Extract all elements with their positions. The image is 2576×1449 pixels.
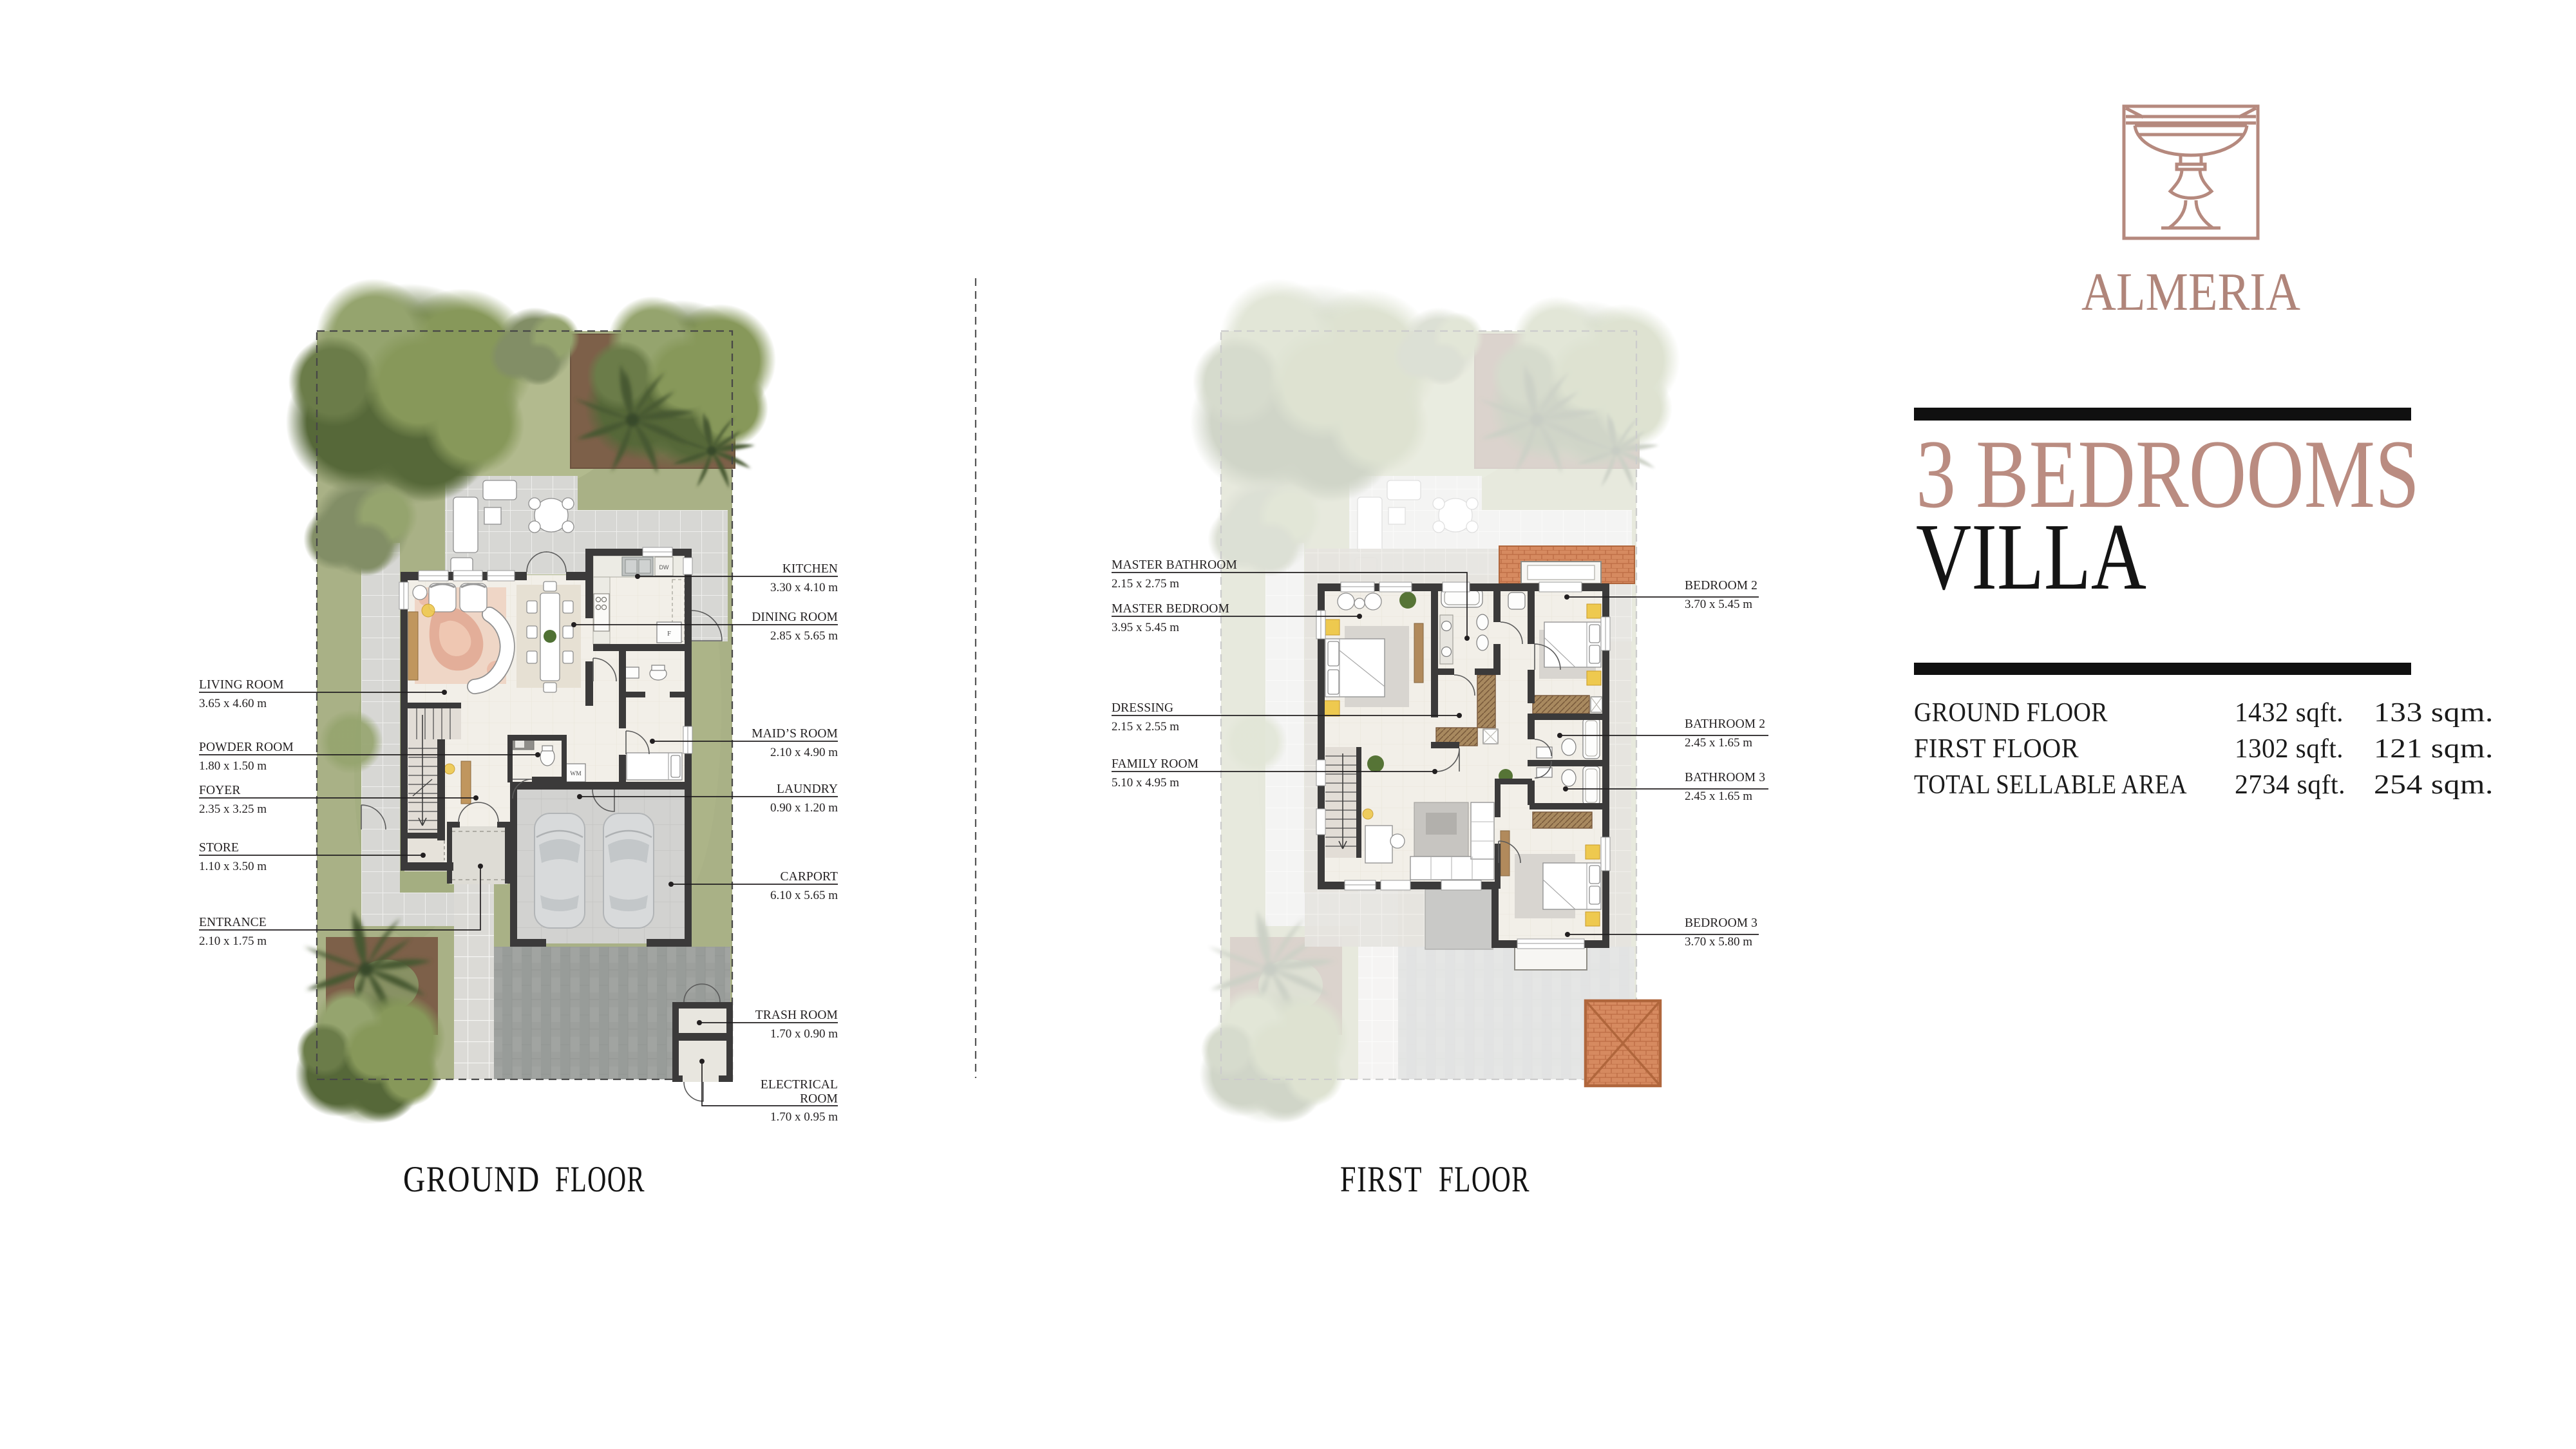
- svg-text:3.30 x 4.10 m: 3.30 x 4.10 m: [770, 581, 838, 594]
- svg-text:GROUND: GROUND: [403, 1159, 540, 1200]
- svg-text:FAMILY ROOM: FAMILY ROOM: [1112, 757, 1198, 771]
- svg-text:3.95 x 5.45 m: 3.95 x 5.45 m: [1112, 621, 1179, 634]
- svg-text:0.90 x 1.20 m: 0.90 x 1.20 m: [770, 801, 838, 815]
- svg-text:LIVING ROOM: LIVING ROOM: [199, 678, 284, 692]
- svg-text:STORE: STORE: [199, 841, 239, 855]
- svg-text:3.65 x 4.60 m: 3.65 x 4.60 m: [199, 697, 267, 710]
- svg-text:BATHROOM 2: BATHROOM 2: [1685, 717, 1765, 731]
- svg-text:5.10 x 4.95 m: 5.10 x 4.95 m: [1112, 776, 1179, 790]
- svg-text:LAUNDRY: LAUNDRY: [777, 782, 838, 796]
- svg-text:FIRST FLOOR: FIRST FLOOR: [1914, 734, 2079, 764]
- svg-text:1.80 x 1.50 m: 1.80 x 1.50 m: [199, 759, 267, 773]
- svg-text:BATHROOM 3: BATHROOM 3: [1685, 771, 1765, 784]
- svg-text:2.15 x 2.55 m: 2.15 x 2.55 m: [1112, 720, 1179, 734]
- svg-text:ROOM: ROOM: [800, 1092, 838, 1106]
- svg-text:MAID’S ROOM: MAID’S ROOM: [752, 727, 838, 741]
- svg-text:254 sqm.: 254 sqm.: [2374, 770, 2494, 800]
- svg-text:FLOOR: FLOOR: [1439, 1159, 1530, 1200]
- svg-text:WM: WM: [570, 771, 582, 777]
- svg-text:KITCHEN: KITCHEN: [782, 562, 838, 576]
- svg-text:CARPORT: CARPORT: [781, 870, 838, 884]
- svg-text:1432 sqft.: 1432 sqft.: [2235, 697, 2344, 728]
- svg-text:121 sqm.: 121 sqm.: [2374, 734, 2494, 764]
- svg-text:F: F: [667, 630, 671, 638]
- svg-text:TOTAL SELLABLE AREA: TOTAL SELLABLE AREA: [1914, 770, 2187, 800]
- svg-text:2.35 x 3.25 m: 2.35 x 3.25 m: [199, 802, 267, 816]
- svg-text:ENTRANCE: ENTRANCE: [199, 916, 267, 929]
- svg-text:6.10 x 5.65 m: 6.10 x 5.65 m: [770, 889, 838, 902]
- svg-text:BEDROOM 2: BEDROOM 2: [1685, 579, 1757, 592]
- svg-text:3.70 x 5.45 m: 3.70 x 5.45 m: [1685, 598, 1752, 611]
- svg-text:VILLA: VILLA: [1916, 504, 2146, 610]
- svg-text:133 sqm.: 133 sqm.: [2374, 697, 2494, 728]
- svg-text:MASTER BATHROOM: MASTER BATHROOM: [1112, 558, 1237, 572]
- svg-text:1.10 x 3.50 m: 1.10 x 3.50 m: [199, 860, 267, 873]
- svg-text:FLOOR: FLOOR: [555, 1159, 645, 1200]
- svg-text:ALMERIA: ALMERIA: [2081, 262, 2300, 322]
- svg-text:2.45 x 1.65 m: 2.45 x 1.65 m: [1685, 790, 1752, 803]
- svg-text:1302 sqft.: 1302 sqft.: [2235, 734, 2344, 764]
- svg-text:2.10 x 1.75 m: 2.10 x 1.75 m: [199, 934, 267, 948]
- svg-text:ELECTRICAL: ELECTRICAL: [761, 1078, 838, 1092]
- svg-text:GROUND FLOOR: GROUND FLOOR: [1914, 697, 2108, 728]
- svg-text:MASTER BEDROOM: MASTER BEDROOM: [1112, 602, 1229, 616]
- svg-text:1.70 x 0.90 m: 1.70 x 0.90 m: [770, 1027, 838, 1041]
- svg-text:DINING ROOM: DINING ROOM: [752, 611, 838, 624]
- svg-text:DRESSING: DRESSING: [1112, 701, 1173, 715]
- svg-text:2.45 x 1.65 m: 2.45 x 1.65 m: [1685, 736, 1752, 750]
- svg-text:DW: DW: [659, 564, 669, 571]
- svg-text:FIRST: FIRST: [1340, 1159, 1423, 1200]
- svg-text:2734 sqft.: 2734 sqft.: [2235, 770, 2345, 800]
- svg-text:BEDROOM 3: BEDROOM 3: [1685, 916, 1757, 930]
- svg-text:2.15 x 2.75 m: 2.15 x 2.75 m: [1112, 577, 1179, 591]
- svg-text:POWDER ROOM: POWDER ROOM: [199, 741, 294, 754]
- svg-text:2.85 x 5.65 m: 2.85 x 5.65 m: [770, 629, 838, 643]
- svg-text:FOYER: FOYER: [199, 784, 240, 797]
- svg-text:2.10 x 4.90 m: 2.10 x 4.90 m: [770, 746, 838, 759]
- svg-text:3.70 x 5.80 m: 3.70 x 5.80 m: [1685, 935, 1752, 949]
- svg-text:TRASH ROOM: TRASH ROOM: [755, 1009, 838, 1022]
- svg-text:1.70 x 0.95 m: 1.70 x 0.95 m: [770, 1110, 838, 1124]
